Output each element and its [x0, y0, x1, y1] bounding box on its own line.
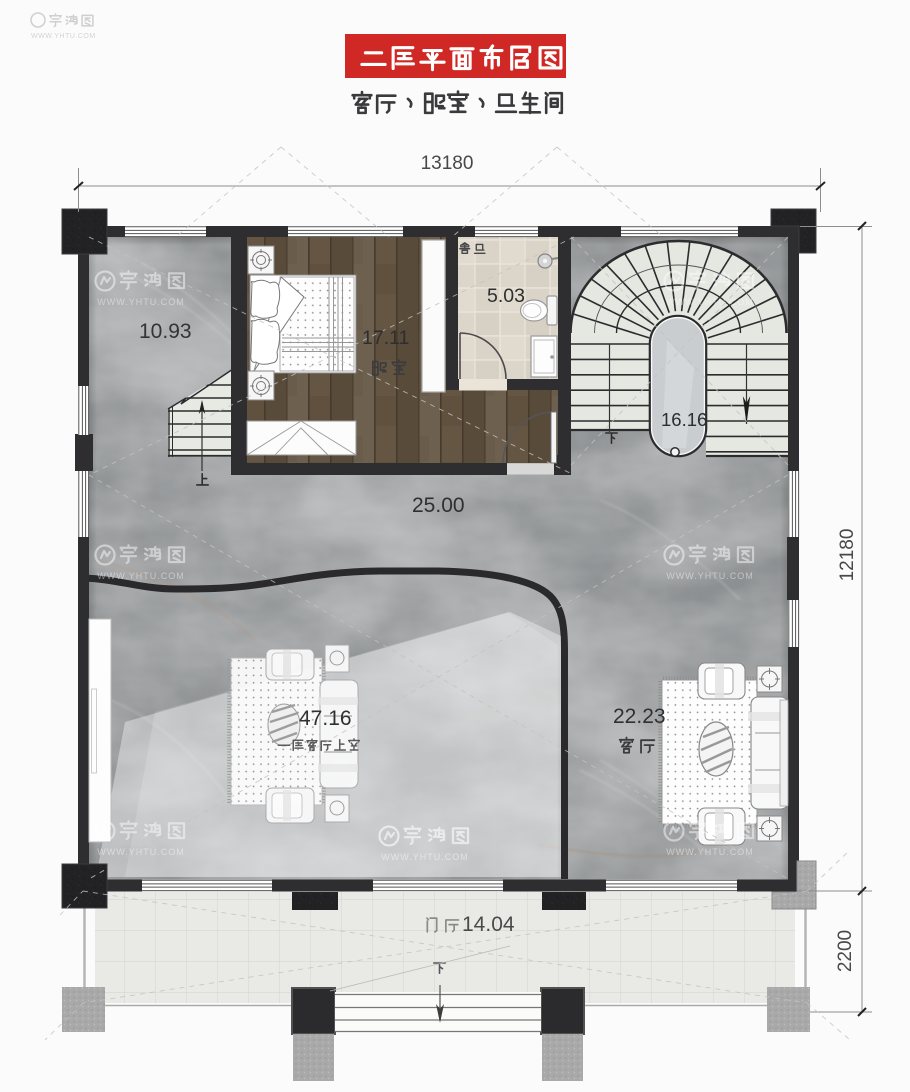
svg-text:WWW.YHTU.COM: WWW.YHTU.COM: [31, 33, 96, 40]
svg-text:WWW.YHTU.COM: WWW.YHTU.COM: [666, 571, 754, 581]
svg-text:WWW.YHTU.COM: WWW.YHTU.COM: [666, 297, 754, 307]
svg-text:WWW.YHTU.COM: WWW.YHTU.COM: [97, 297, 185, 307]
svg-text:WWW.YHTU.COM: WWW.YHTU.COM: [381, 852, 469, 862]
svg-text:WWW.YHTU.COM: WWW.YHTU.COM: [97, 571, 185, 581]
svg-text:WWW.YHTU.COM: WWW.YHTU.COM: [97, 847, 185, 857]
